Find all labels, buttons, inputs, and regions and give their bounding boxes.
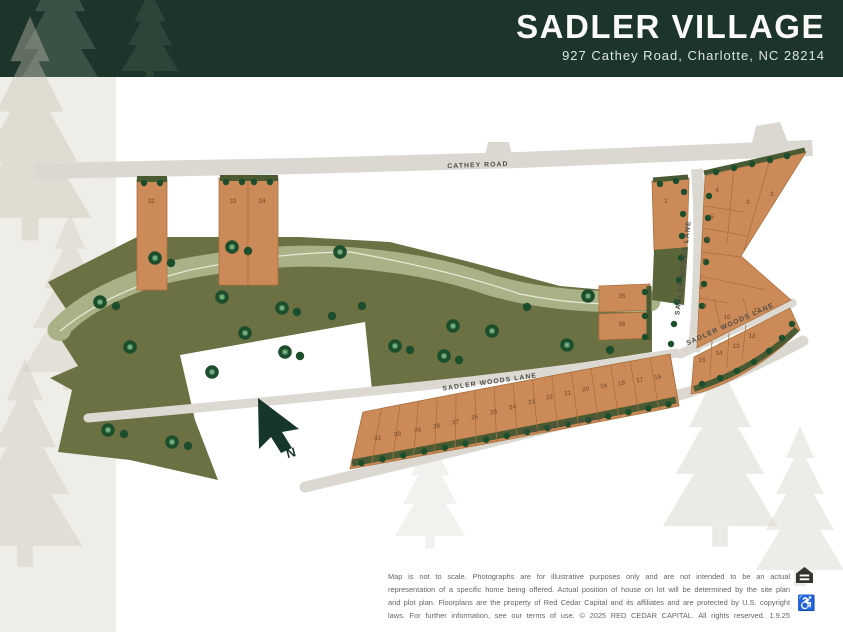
tree-icon: [165, 435, 179, 449]
lot-number-label: 12: [748, 333, 756, 340]
lot-number-label: 2: [770, 191, 774, 198]
lot-number-label: 5: [710, 214, 714, 221]
tree-icon: [123, 340, 137, 354]
frontage-tree-icon: [157, 180, 163, 186]
tree-icon: [215, 290, 229, 304]
frontage-tree-icon: [789, 321, 795, 327]
tree-icon: [296, 352, 304, 360]
frontage-tree-icon: [625, 409, 631, 415]
frontage-tree-icon: [713, 169, 719, 175]
tree-icon: [523, 303, 531, 311]
tree-icon: [358, 302, 366, 310]
frontage-tree-icon: [681, 189, 687, 195]
page: CATHEY ROAD SADLER WOODS LANE SADLER WOO…: [0, 0, 843, 632]
tree-icon: [120, 430, 128, 438]
frontage-tree-icon: [251, 179, 257, 185]
frontage-tree-icon: [680, 211, 686, 217]
community-title: SADLER VILLAGE: [516, 10, 825, 45]
header-text: SADLER VILLAGE 927 Cathey Road, Charlott…: [516, 10, 825, 63]
frontage-tree-icon: [442, 444, 448, 450]
frontage-tree-icon: [671, 321, 677, 327]
tree-icon: [388, 339, 402, 353]
frontage-tree-icon: [767, 157, 773, 163]
tree-icon: [275, 301, 289, 315]
lot-number-label: 9: [703, 303, 707, 310]
lot-parcel: [137, 179, 167, 290]
disclaimer-line: representation of a specific home being …: [388, 583, 790, 596]
lot-parcel: [248, 178, 278, 285]
equal-housing-icon: [796, 567, 813, 584]
tree-icon: [328, 312, 336, 320]
tree-icon: [278, 345, 292, 359]
lot-number-label: 6: [706, 236, 710, 243]
frontage-tree-icon: [400, 452, 406, 458]
frontage-tree-icon: [668, 341, 674, 347]
frontage-tree-icon: [766, 348, 772, 354]
lot-number-label: 7: [702, 258, 706, 265]
lot-number-label: 13: [732, 343, 740, 350]
frontage-tree-icon: [483, 437, 489, 443]
frontage-tree-icon: [267, 179, 273, 185]
lot-number-label: 10: [723, 314, 731, 321]
frontage-tree-icon: [706, 193, 712, 199]
tree-icon: [606, 346, 614, 354]
lot-number-label: 36: [618, 321, 626, 328]
lot-number-label: 33: [229, 198, 237, 205]
pine-tree-watermark: [0, 359, 82, 567]
tree-icon: [455, 356, 463, 364]
frontage-tree-icon: [642, 289, 648, 295]
disclaimer-text: Map is not to scale. Photographs are for…: [388, 570, 790, 622]
north-arrow-label: N: [284, 444, 297, 461]
frontage-tree-icon: [665, 401, 671, 407]
frontage-tree-icon: [421, 448, 427, 454]
accessibility-icon: ♿: [797, 596, 816, 611]
frontage-tree-icon: [751, 359, 757, 365]
tree-icon: [112, 302, 120, 310]
lot-number-label: 11: [754, 307, 761, 314]
lot-parcel: [219, 178, 248, 285]
frontage-tree-icon: [731, 165, 737, 171]
lot-number-label: 8: [699, 284, 703, 291]
tree-icon: [406, 346, 414, 354]
tree-icon: [101, 423, 115, 437]
frontage-tree-icon: [504, 433, 510, 439]
frontage-tree-icon: [239, 179, 245, 185]
tree-icon: [437, 349, 451, 363]
pine-tree-watermark: [756, 426, 843, 586]
frontage-tree-icon: [379, 456, 385, 462]
lot-number-label: 3: [746, 199, 750, 206]
frontage-tree-icon: [645, 405, 651, 411]
frontage-tree-icon: [734, 368, 740, 374]
tree-icon: [244, 247, 252, 255]
lot-number-label: 32: [147, 198, 155, 205]
pine-tree-silhouette: [121, 0, 178, 81]
frontage-tree-icon: [462, 440, 468, 446]
tree-icon: [184, 442, 192, 450]
lot-number-label: 1: [664, 198, 668, 205]
lot-frontage-strip: [137, 178, 278, 179]
tree-icon: [560, 338, 574, 352]
frontage-tree-icon: [358, 460, 364, 466]
tree-icon: [167, 259, 175, 267]
site-plan-map: CATHEY ROAD SADLER WOODS LANE SADLER WOO…: [0, 0, 843, 632]
frontage-tree-icon: [223, 179, 229, 185]
lot-number-label: 35: [618, 293, 626, 300]
tree-icon: [148, 251, 162, 265]
tree-icon: [446, 319, 460, 333]
lot-number-label: 14: [715, 350, 723, 357]
frontage-tree-icon: [673, 178, 679, 184]
lot-number-label: 34: [258, 198, 266, 205]
frontage-tree-icon: [699, 381, 705, 387]
north-arrow: N: [258, 398, 299, 461]
tree-icon: [238, 326, 252, 340]
frontage-tree-icon: [657, 181, 663, 187]
tree-icon: [581, 289, 595, 303]
frontage-tree-icon: [717, 375, 723, 381]
community-address: 927 Cathey Road, Charlotte, NC 28214: [516, 48, 825, 63]
frontage-tree-icon: [784, 153, 790, 159]
tree-icon: [225, 240, 239, 254]
frontage-tree-icon: [642, 313, 648, 319]
tree-icon: [333, 245, 347, 259]
frontage-tree-icon: [642, 334, 648, 340]
frontage-tree-icon: [605, 413, 611, 419]
road-label-cathey: CATHEY ROAD: [447, 161, 509, 170]
disclaimer-line: Map is not to scale. Photographs are for…: [388, 570, 790, 583]
disclaimer-line: laws. For further information, see our t…: [388, 609, 790, 622]
frontage-tree-icon: [779, 335, 785, 341]
tree-icon: [293, 308, 301, 316]
lot-number-label: 15: [698, 357, 706, 364]
tree-icon: [93, 295, 107, 309]
disclaimer-line: and plot plan. Floorplans are the proper…: [388, 596, 790, 609]
frontage-tree-icon: [141, 180, 147, 186]
frontage-tree-icon: [749, 161, 755, 167]
tree-icon: [485, 324, 499, 338]
lot-number-label: 4: [715, 187, 719, 194]
tree-icon: [205, 365, 219, 379]
footer-icons: ♿: [796, 567, 816, 611]
